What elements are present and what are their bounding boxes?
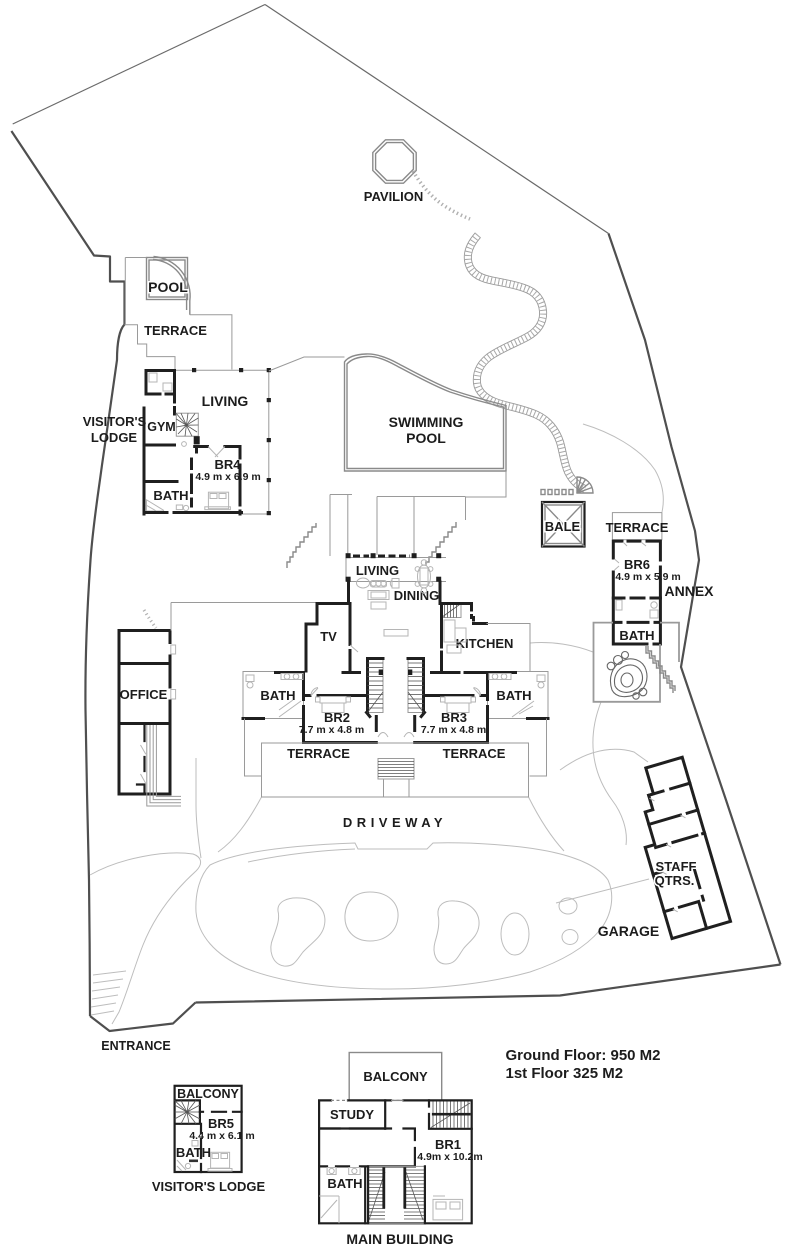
- svg-text:POOL: POOL: [148, 279, 188, 295]
- svg-text:BATH: BATH: [176, 1145, 211, 1160]
- svg-text:4.9 m x 5.9 m: 4.9 m x 5.9 m: [615, 571, 680, 583]
- svg-text:BR1: BR1: [435, 1137, 461, 1152]
- svg-text:SWIMMING: SWIMMING: [389, 414, 464, 430]
- svg-text:KITCHEN: KITCHEN: [456, 636, 514, 651]
- svg-text:BR5: BR5: [208, 1116, 234, 1131]
- svg-text:4.9 m x 6.9 m: 4.9 m x 6.9 m: [195, 471, 260, 483]
- svg-text:TERRACE: TERRACE: [287, 746, 350, 761]
- svg-text:BATH: BATH: [496, 688, 531, 703]
- svg-text:STUDY: STUDY: [330, 1107, 374, 1122]
- svg-text:BATH: BATH: [619, 628, 654, 643]
- svg-text:BALCONY: BALCONY: [363, 1069, 428, 1084]
- svg-text:7.7 m x 4.8 m: 7.7 m x 4.8 m: [299, 724, 364, 736]
- svg-text:TERRACE: TERRACE: [606, 520, 669, 535]
- svg-text:BATH: BATH: [260, 688, 295, 703]
- svg-text:BALE: BALE: [545, 519, 581, 534]
- svg-text:BR2: BR2: [324, 710, 350, 725]
- svg-text:4.4 m x 6.1 m: 4.4 m x 6.1 m: [189, 1130, 254, 1142]
- svg-text:TERRACE: TERRACE: [144, 323, 207, 338]
- svg-text:QTRS.: QTRS.: [655, 873, 695, 888]
- svg-text:LODGE: LODGE: [91, 430, 138, 445]
- svg-text:BALCONY: BALCONY: [177, 1087, 239, 1101]
- svg-text:PAVILION: PAVILION: [364, 189, 423, 204]
- svg-text:LIVING: LIVING: [202, 393, 249, 409]
- svg-text:TERRACE: TERRACE: [443, 746, 506, 761]
- svg-text:ANNEX: ANNEX: [664, 583, 714, 599]
- svg-text:ENTRANCE: ENTRANCE: [101, 1039, 170, 1053]
- svg-text:LIVING: LIVING: [356, 563, 399, 578]
- svg-text:DRIVEWAY: DRIVEWAY: [343, 815, 447, 830]
- svg-text:VISITOR'S LODGE: VISITOR'S LODGE: [152, 1179, 266, 1194]
- svg-text:BR6: BR6: [624, 557, 650, 572]
- svg-text:1st Floor 325 M2: 1st Floor 325 M2: [506, 1065, 624, 1082]
- svg-text:OFFICE: OFFICE: [120, 687, 168, 702]
- svg-text:STAFF: STAFF: [656, 859, 697, 874]
- svg-text:POOL: POOL: [406, 430, 446, 446]
- svg-text:BR4: BR4: [214, 457, 241, 472]
- svg-text:BATH: BATH: [327, 1176, 362, 1191]
- svg-text:4.9m x 10.2m: 4.9m x 10.2m: [417, 1151, 482, 1163]
- svg-text:TV: TV: [320, 629, 337, 644]
- svg-text:VISITOR'S: VISITOR'S: [83, 414, 147, 429]
- svg-text:BATH: BATH: [153, 488, 188, 503]
- svg-text:GYM: GYM: [147, 420, 175, 434]
- svg-text:7.7 m x 4.8 m: 7.7 m x 4.8 m: [421, 724, 486, 736]
- svg-text:MAIN BUILDING: MAIN BUILDING: [346, 1231, 453, 1247]
- svg-text:GARAGE: GARAGE: [598, 923, 659, 939]
- svg-text:BR3: BR3: [441, 710, 467, 725]
- svg-text:Ground Floor: 950 M2: Ground Floor: 950 M2: [506, 1047, 661, 1064]
- svg-text:DINING: DINING: [394, 588, 440, 603]
